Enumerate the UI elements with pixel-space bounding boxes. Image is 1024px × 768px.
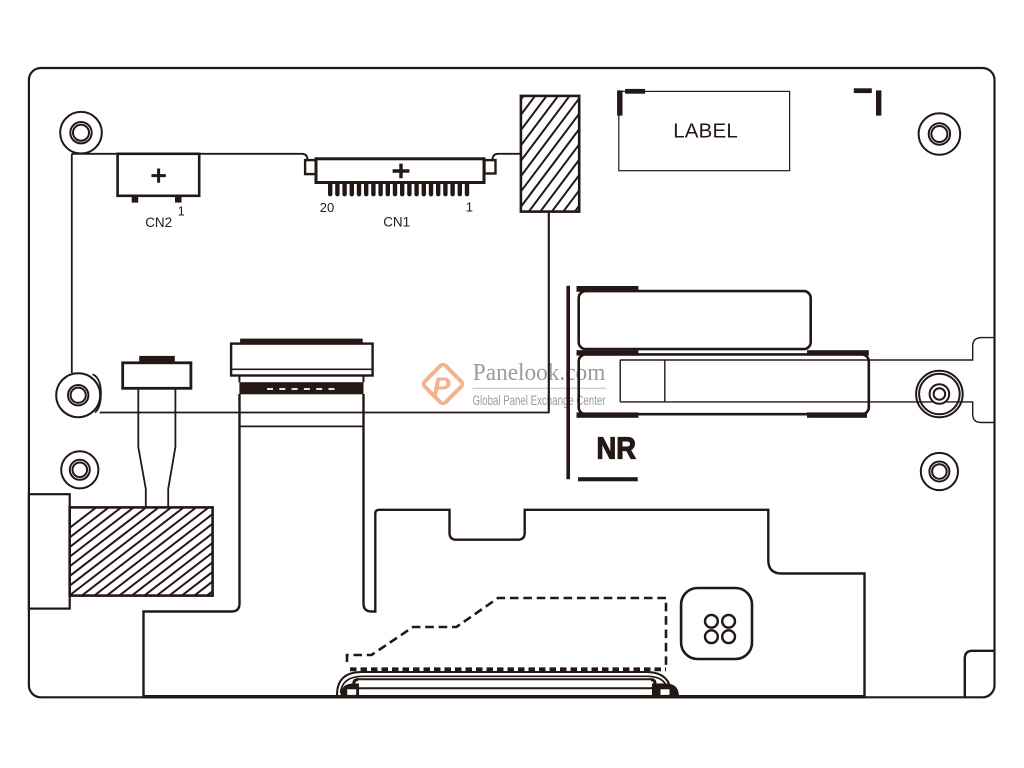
svg-text:LABEL: LABEL — [673, 119, 738, 142]
svg-text:NR: NR — [597, 431, 637, 466]
svg-text:CN1: CN1 — [383, 214, 410, 229]
svg-text:1: 1 — [466, 199, 473, 214]
svg-text:1: 1 — [178, 204, 185, 218]
svg-text:P: P — [433, 372, 452, 402]
svg-text:Panelook.com: Panelook.com — [473, 360, 606, 386]
svg-text:Global Panel Exchange Center: Global Panel Exchange Center — [473, 393, 606, 408]
svg-text:20: 20 — [320, 200, 334, 215]
svg-text:CN2: CN2 — [145, 215, 172, 230]
